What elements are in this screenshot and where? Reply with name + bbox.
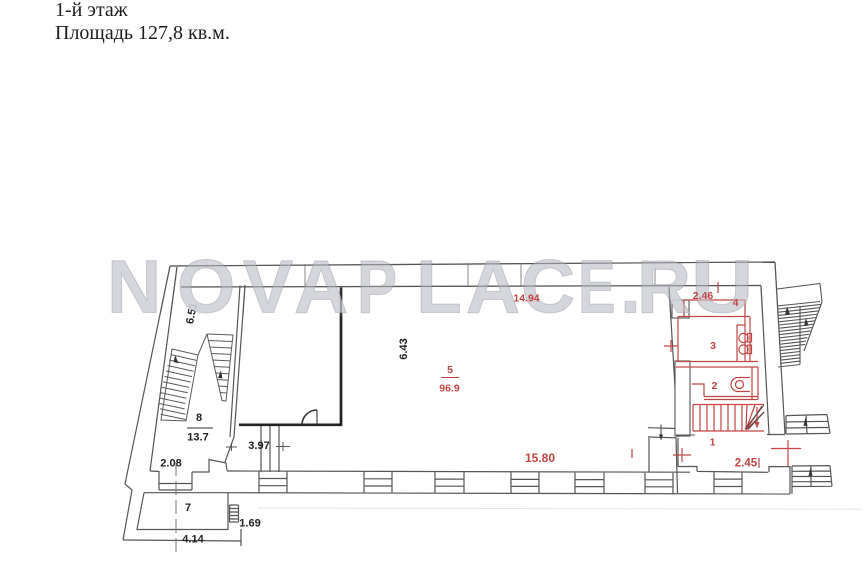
svg-text:1: 1	[710, 437, 716, 449]
svg-text:N: N	[107, 245, 161, 329]
svg-text:2.45: 2.45	[735, 458, 758, 470]
svg-text:14.94: 14.94	[513, 293, 539, 305]
svg-text:4.14: 4.14	[182, 534, 204, 546]
svg-text:E: E	[578, 246, 616, 330]
svg-text:15.80: 15.80	[525, 451, 555, 465]
svg-text:3: 3	[710, 340, 716, 352]
svg-text:P: P	[357, 246, 397, 329]
svg-text:13.7: 13.7	[187, 432, 208, 444]
svg-text:R: R	[637, 245, 691, 329]
svg-text:2.46: 2.46	[693, 290, 714, 302]
svg-text:5: 5	[447, 364, 453, 376]
svg-text:1.69: 1.69	[239, 518, 260, 530]
svg-text:8: 8	[196, 412, 202, 424]
svg-text:2: 2	[712, 380, 718, 392]
svg-text:2.08: 2.08	[160, 458, 181, 470]
svg-text:96.9: 96.9	[439, 383, 460, 395]
svg-text:4: 4	[733, 297, 739, 309]
svg-text:7: 7	[185, 502, 191, 514]
svg-text:3.97: 3.97	[248, 440, 269, 452]
svg-text:6.43: 6.43	[398, 338, 410, 359]
svg-text:U: U	[691, 246, 753, 330]
